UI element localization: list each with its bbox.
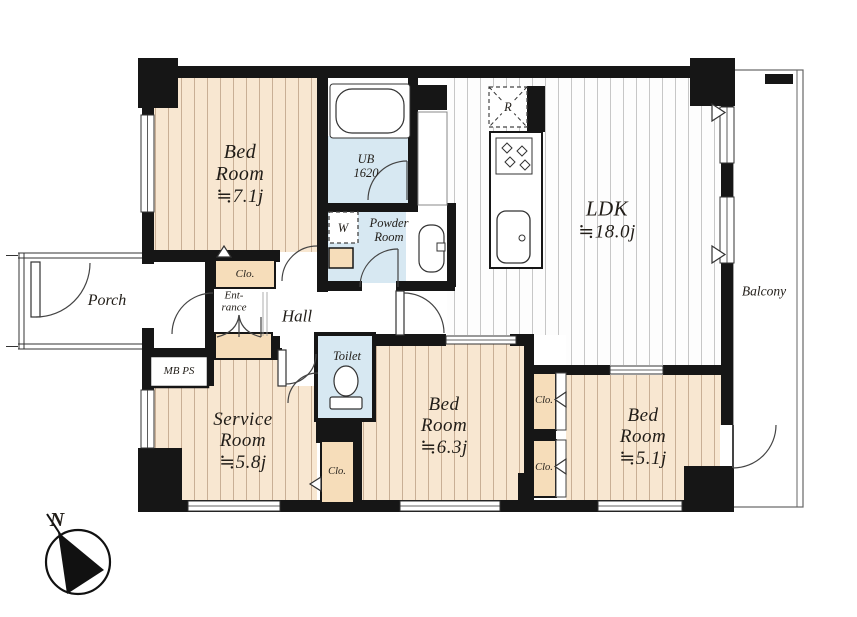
closet-label-bed71: Clo.	[236, 268, 255, 280]
front-door-leaf	[31, 262, 40, 317]
shoe-cabinet	[215, 333, 272, 359]
toilet-tank	[330, 397, 362, 409]
entrance-label: Ent- rance	[221, 290, 246, 315]
mb-ps-label: MB PS	[164, 365, 195, 377]
ldk-label: LDK ≒18.0j	[578, 198, 635, 243]
toilet-label: Toilet	[333, 349, 361, 363]
toilet-bowl	[334, 366, 358, 396]
porch-label: Porch	[88, 292, 127, 310]
closet-label-service: Clo.	[328, 466, 346, 478]
closet-label-mid-upper: Clo.	[535, 395, 553, 407]
bedroom-51-label: Bed Room ≒5.1j	[619, 405, 666, 469]
powder-room-label: Powder Room	[370, 216, 409, 244]
ldk-floor-ext	[566, 335, 721, 365]
service-door-leaf	[278, 350, 286, 386]
porch-door-arc	[36, 263, 90, 317]
floorplan-drawing	[0, 0, 857, 617]
hall-label: Hall	[282, 306, 312, 325]
powder-cabinet	[329, 248, 353, 268]
bedroom-63-label: Bed Room ≒6.3j	[420, 394, 467, 458]
washer-label: W	[338, 221, 348, 235]
ldk-door-leaf	[396, 291, 404, 335]
utility-strip	[418, 112, 447, 205]
balcony-label: Balcony	[742, 283, 786, 298]
closet-label-mid-lower: Clo.	[535, 462, 553, 474]
bedroom-71-label: Bed Room ≒7.1j	[216, 141, 265, 207]
ub-label: UB 1620	[354, 152, 379, 180]
refrigerator-label: R	[504, 100, 512, 114]
floorplan-canvas: Bed Room ≒7.1j Service Room ≒5.8j Bed Ro…	[0, 0, 857, 617]
service-room-label: Service Room ≒5.8j	[213, 409, 272, 473]
compass-needle	[58, 532, 104, 594]
ldk-door-arc	[404, 293, 444, 333]
north-label: N	[50, 509, 64, 531]
